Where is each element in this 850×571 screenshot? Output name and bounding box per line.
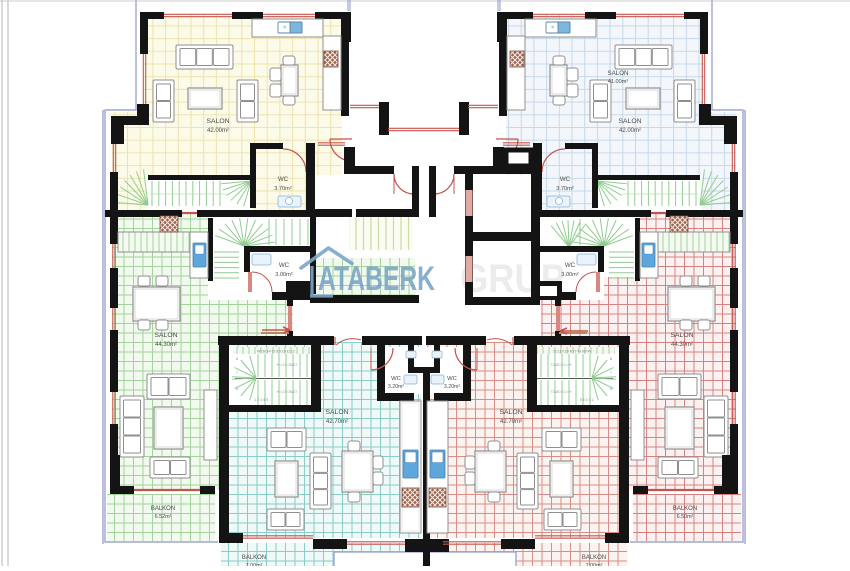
svg-text:SALON: SALON: [206, 118, 229, 125]
svg-text:7: 7: [236, 371, 238, 375]
svg-text:SALON: SALON: [154, 332, 177, 339]
svg-text:BALKON: BALKON: [242, 555, 266, 561]
svg-text:BALKON: BALKON: [582, 555, 606, 561]
svg-text:3.20m²: 3.20m²: [444, 384, 460, 390]
svg-text:H=17.06/27: H=17.06/27: [277, 362, 299, 367]
svg-text:WC: WC: [447, 376, 457, 382]
svg-text:1 2 3 4 5: 1 2 3 4 5: [254, 398, 268, 402]
svg-text:8: 8: [610, 357, 612, 361]
svg-text:WC: WC: [279, 262, 290, 269]
svg-text:SALON: SALON: [618, 118, 641, 125]
svg-text:ATABERK: ATABERK: [318, 260, 435, 298]
svg-text:41.00m²: 41.00m²: [608, 79, 629, 85]
svg-text:WC: WC: [560, 176, 571, 183]
svg-text:44.30m²: 44.30m²: [671, 342, 693, 348]
svg-text:42.70m²: 42.70m²: [326, 419, 348, 425]
svg-text:7: 7: [610, 371, 612, 375]
svg-text:BALKON: BALKON: [151, 506, 175, 512]
svg-text:WC: WC: [391, 376, 401, 382]
svg-text:H=17.06/27: H=17.06/27: [550, 389, 572, 394]
svg-text:H=17.06/27: H=17.06/27: [550, 362, 572, 367]
svg-text:H=17.06/27: H=17.06/27: [277, 389, 299, 394]
svg-text:SALON: SALON: [670, 332, 693, 339]
svg-text:W=26 H=17 8 9 10 11 12: W=26 H=17 8 9 10 11 12: [553, 350, 591, 354]
svg-text:8: 8: [236, 357, 238, 361]
svg-text:6.50m²: 6.50m²: [677, 514, 694, 520]
svg-text:3.70m²: 3.70m²: [274, 186, 292, 192]
svg-text:42.70m²: 42.70m²: [500, 419, 522, 425]
svg-text:WC: WC: [278, 176, 289, 183]
svg-text:1 2 3 4 5: 1 2 3 4 5: [580, 398, 594, 402]
svg-text:WC: WC: [565, 262, 576, 269]
svg-text:3.20m²: 3.20m²: [388, 384, 404, 390]
svg-text:6: 6: [610, 387, 612, 391]
svg-text:6.52m²: 6.52m²: [155, 514, 172, 520]
svg-text:W=26 H=17 8 9 10 11 12: W=26 H=17 8 9 10 11 12: [257, 350, 295, 354]
svg-text:SALON: SALON: [325, 409, 348, 416]
svg-text:SALON: SALON: [499, 409, 522, 416]
svg-text:42.00m²: 42.00m²: [207, 128, 229, 134]
svg-text:42.00m²: 42.00m²: [619, 128, 641, 134]
svg-text:6: 6: [236, 387, 238, 391]
svg-text:SALON: SALON: [608, 70, 629, 77]
svg-text:3.00m²: 3.00m²: [561, 272, 579, 278]
svg-text:44.30m²: 44.30m²: [155, 342, 177, 348]
svg-text:BALKON: BALKON: [673, 506, 697, 512]
svg-text:3.00m²: 3.00m²: [275, 272, 293, 278]
svg-text:3.70m²: 3.70m²: [556, 186, 574, 192]
